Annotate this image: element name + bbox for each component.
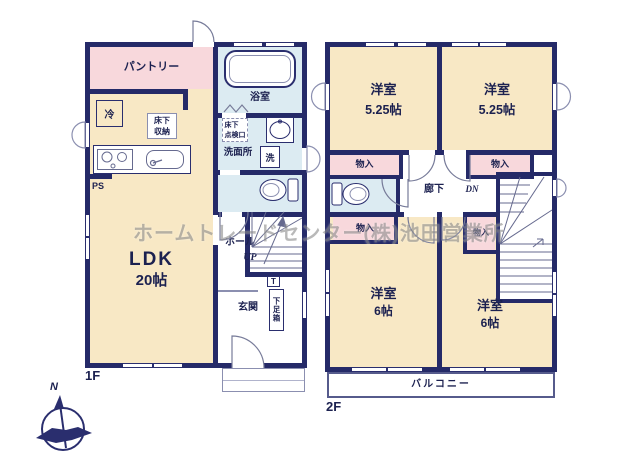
compass-needle-head [54, 395, 64, 409]
wall-closet-center-bottom [463, 250, 500, 254]
room-ne [442, 47, 552, 150]
fridge-label: 冷 [105, 106, 115, 121]
shoebox: 下足箱 [269, 289, 284, 331]
floor2-plan: 洋室 5.25帖 洋室 5.25帖 物入 物入 物入 物入 廊下 DN 洋室 6… [325, 42, 557, 372]
casement-icon [307, 146, 320, 172]
window-entrance-right [302, 292, 307, 318]
back-door-arc [193, 21, 214, 42]
washer-label: 洗 [265, 151, 274, 164]
room-sw-label: 洋室 [330, 287, 437, 302]
window-nw-top-2 [398, 42, 426, 47]
ldk-label: LDK [100, 249, 203, 271]
window-bath-top-1 [234, 42, 262, 47]
wall-ps [90, 174, 112, 179]
toilet-room-1f [218, 175, 302, 212]
underfloor-storage: 床下 収納 [147, 113, 177, 139]
pantry-label: パントリー [90, 61, 213, 74]
window-kitchen-left [85, 123, 90, 147]
washing-machine: 洗 [260, 146, 280, 168]
entrance-porch [222, 368, 305, 392]
closet-nw-label: 物入 [330, 159, 399, 169]
stairwell-2f [500, 176, 552, 302]
floorplan-image: 冷 床下 収納 床下 点検口 洗 T 下足箱 パントリー PS LDK 20帖 … [0, 0, 620, 465]
window-ldk-bottom [123, 363, 182, 368]
stove [97, 149, 133, 170]
window-ldk-left [85, 215, 90, 259]
washbasin [266, 117, 294, 143]
refrigerator: 冷 [96, 100, 123, 127]
kitchen-sink [146, 150, 184, 169]
shoebox-top: T [267, 276, 280, 287]
ps-label: PS [92, 181, 104, 191]
toilet-room-2f [330, 179, 396, 212]
compass-rose [36, 395, 92, 450]
up-label: UP [237, 252, 263, 264]
washroom-door-opening [220, 170, 240, 175]
shoebox-label: 下足箱 [271, 297, 282, 323]
entrance-opening-line [218, 290, 258, 292]
window-se-right [552, 272, 557, 316]
balcony-label: バルコニー [329, 379, 553, 391]
wall-stairs-top-2f [496, 172, 552, 176]
wall-pantry-bottom [90, 89, 188, 94]
compass-north-label: N [50, 381, 58, 394]
shoebox-t-label: T [271, 277, 276, 286]
room-ne-size: 5.25帖 [442, 103, 552, 117]
window-ne-top-1 [452, 42, 478, 47]
closet-ne-label: 物入 [470, 159, 530, 169]
window-ne-top-2 [480, 42, 506, 47]
room-nw-door-opening [409, 150, 435, 155]
casement-icon [557, 179, 566, 197]
room-se-size: 6帖 [435, 317, 545, 331]
porch-step-line [223, 380, 304, 381]
floor2-label: 2F [326, 400, 341, 415]
underfloor-storage-label: 床下 収納 [154, 115, 170, 137]
room-ne-label: 洋室 [442, 83, 552, 98]
room-sw-size: 6帖 [330, 305, 437, 319]
room-nw-size: 5.25帖 [330, 103, 437, 117]
wall-closet-nw-bottom [330, 175, 403, 179]
bathtub-inner [229, 55, 291, 83]
compass-circle [42, 408, 84, 450]
watermark-text: ホームトレードセンター(株)池田営業所 [133, 217, 505, 246]
floor1-label: 1F [85, 369, 100, 384]
casement-icon [72, 122, 85, 148]
back-door-opening [193, 42, 214, 47]
inspection-hatch-label: 床下 点検口 [225, 120, 246, 140]
wall-center-top-2f [437, 47, 442, 155]
room-nw [330, 47, 437, 150]
corridor-label: 廊下 [416, 184, 452, 196]
ldk-room [90, 47, 213, 363]
balcony: バルコニー [327, 372, 555, 398]
entrance-label: 玄関 [228, 302, 268, 314]
inspection-hatch: 床下 点検口 [222, 118, 248, 142]
bathtub [224, 50, 296, 88]
wall-closet-nw-right [399, 150, 403, 175]
wall-toilet-right-2f [396, 179, 400, 212]
ldk-size-label: 20帖 [100, 272, 203, 289]
compass-boat-shape [36, 427, 92, 443]
down-label: DN [460, 184, 484, 194]
floor1-plan: 冷 床下 収納 床下 点検口 洗 T 下足箱 パントリー PS LDK 20帖 … [85, 42, 307, 368]
washroom-label: 洗面所 [216, 148, 260, 159]
casement-icon [557, 83, 571, 110]
window-ne-right [552, 84, 557, 110]
bath-label: 浴室 [218, 92, 302, 104]
casement-icon [312, 83, 326, 110]
compass-needle [60, 404, 66, 448]
room-se-label: 洋室 [435, 299, 545, 314]
side-door-opening [302, 148, 307, 170]
wall-pantry-stub [183, 89, 188, 110]
window-bath-top-2 [266, 42, 294, 47]
window-nw-top-1 [366, 42, 394, 47]
room-nw-label: 洋室 [330, 83, 437, 98]
window-stairs-right [552, 180, 557, 196]
